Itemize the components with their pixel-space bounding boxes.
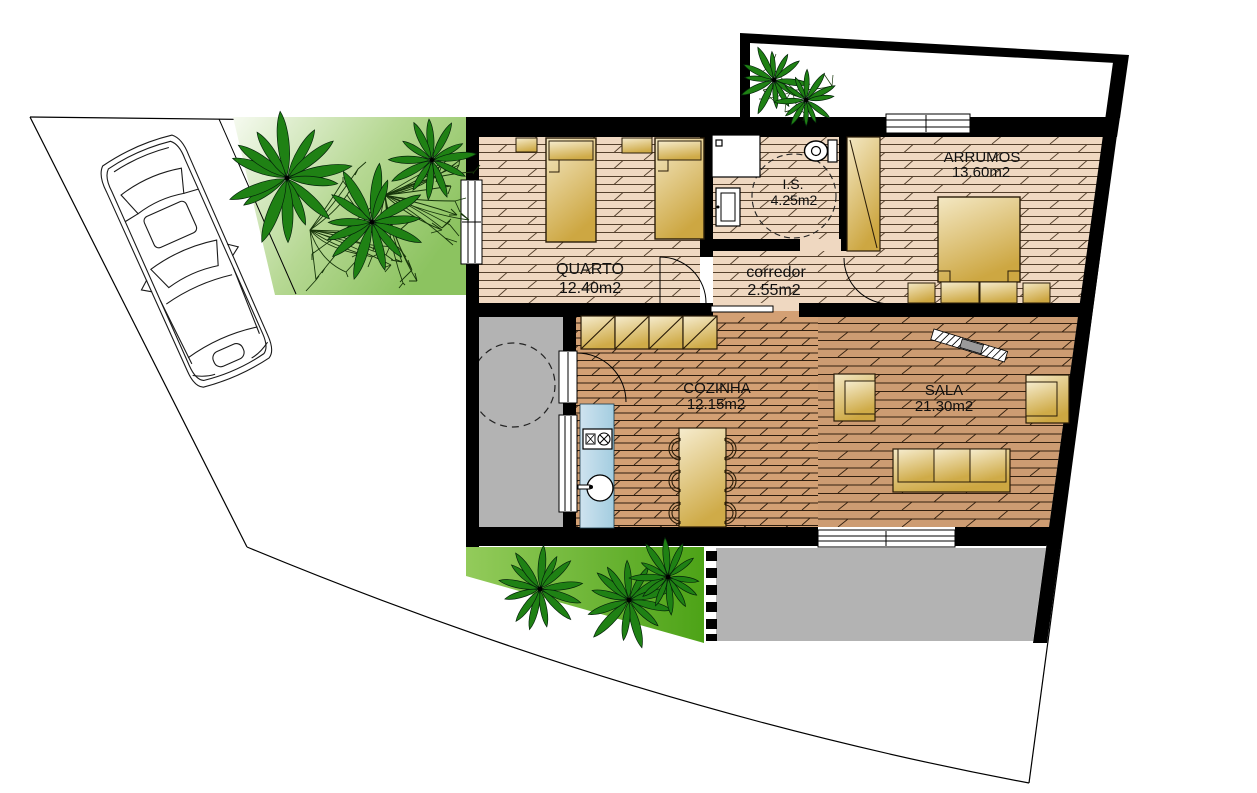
svg-text:corredor: corredor	[746, 264, 806, 281]
svg-text:2.55m2: 2.55m2	[747, 282, 800, 299]
svg-text:QUARTO: QUARTO	[556, 261, 624, 278]
svg-text:I.S.: I.S.	[782, 176, 803, 192]
svg-text:SALA: SALA	[925, 382, 963, 399]
svg-text:COZINHA: COZINHA	[683, 380, 751, 397]
svg-text:13.60m2: 13.60m2	[952, 164, 1010, 181]
svg-text:12.15m2: 12.15m2	[687, 396, 745, 413]
svg-text:4.25m2: 4.25m2	[771, 192, 818, 208]
svg-text:12.40m2: 12.40m2	[559, 280, 621, 297]
svg-text:21.30m2: 21.30m2	[915, 398, 973, 415]
